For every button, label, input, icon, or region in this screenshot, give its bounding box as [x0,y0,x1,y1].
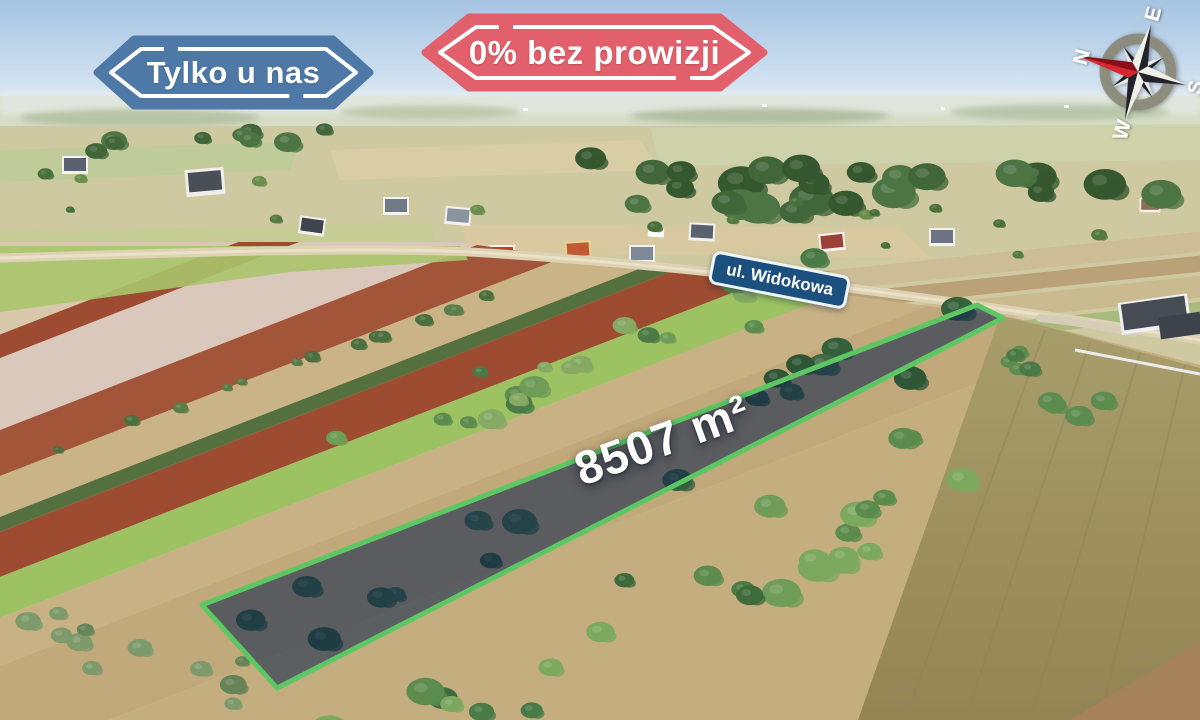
compass-letter-s: S [1183,78,1200,97]
badge-no-commission-label: 0% bez prowizji [421,13,768,92]
badge-no-commission: 0% bez prowizji [421,13,768,92]
badge-exclusive-label: Tylko u nas [93,35,374,110]
compass-letter-n: N [1069,47,1095,68]
listing-photo: 8507 m² ul. Widokowa Tylko u nas 0% bez … [0,0,1200,720]
badge-exclusive: Tylko u nas [93,35,374,110]
